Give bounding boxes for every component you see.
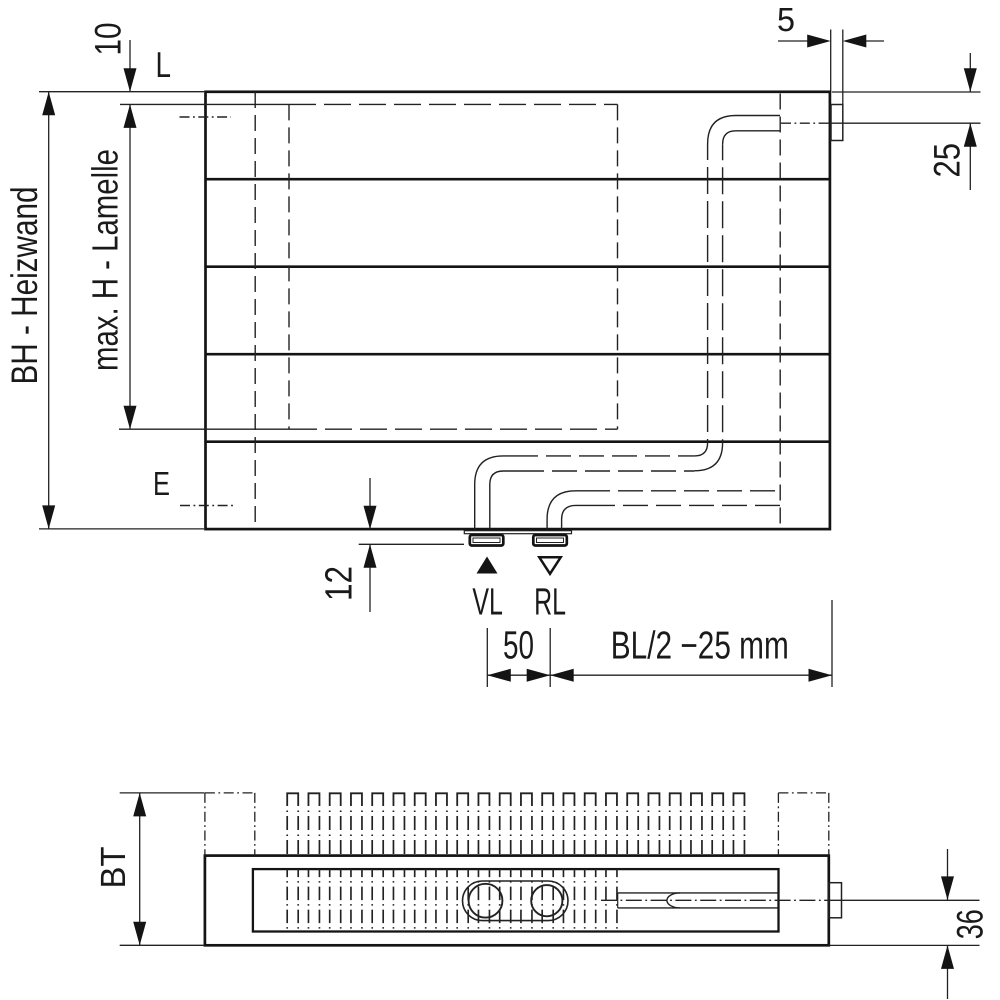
svg-text:RL: RL [534,582,566,624]
svg-text:L: L [156,44,172,85]
svg-text:max. H - Lamelle: max. H - Lamelle [84,149,125,371]
svg-text:36: 36 [949,909,990,939]
svg-text:BT: BT [94,847,133,889]
svg-text:10: 10 [88,23,129,56]
svg-text:BL/2 −25 mm: BL/2 −25 mm [611,625,789,668]
svg-text:50: 50 [503,624,534,668]
svg-text:VL: VL [472,582,503,624]
svg-text:BH - Heizwand: BH - Heizwand [4,187,45,385]
svg-text:25: 25 [927,143,968,178]
svg-text:5: 5 [777,2,795,39]
svg-text:12: 12 [319,566,361,601]
svg-text:E: E [153,466,170,503]
